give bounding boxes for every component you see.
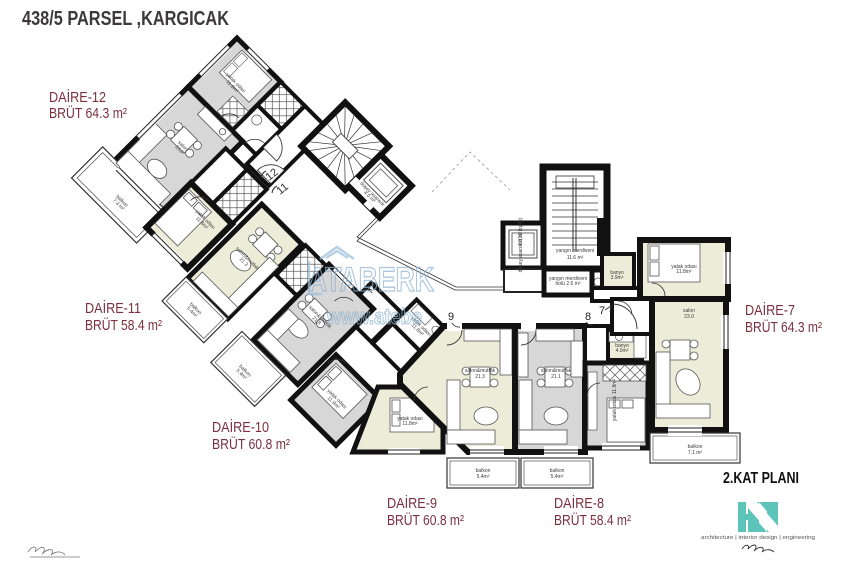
svg-text:11.6 m²: 11.6 m² [567, 255, 584, 261]
svg-text:BRÜT 64.3 m²: BRÜT 64.3 m² [745, 318, 822, 336]
svg-text:4.0 m²: 4.0 m² [518, 232, 524, 247]
svg-text:3.9m²: 3.9m² [611, 275, 624, 281]
svg-text:DAİRE-10: DAİRE-10 [212, 418, 269, 436]
svg-text:DAİRE-8: DAİRE-8 [554, 494, 604, 512]
svg-text:DAİRE-12: DAİRE-12 [49, 88, 106, 106]
svg-text:11.8m²: 11.8m² [402, 421, 418, 427]
svg-text:9: 9 [448, 311, 454, 323]
svg-text:BRÜT 60.8 m²: BRÜT 60.8 m² [212, 435, 290, 453]
svg-text:DAİRE-9: DAİRE-9 [387, 494, 437, 512]
svg-text:5.4m²: 5.4m² [477, 474, 490, 480]
svg-text:www.atebe: www.atebe [326, 304, 422, 329]
svg-text:BRÜT 58.4 m²: BRÜT 58.4 m² [85, 316, 162, 334]
svg-text:yangın merdiveni: yangın merdiveni [556, 248, 594, 254]
svg-text:23.0: 23.0 [684, 314, 694, 320]
svg-text:2.KAT PLANI: 2.KAT PLANI [723, 470, 799, 487]
svg-text:21.1: 21.1 [551, 374, 561, 380]
svg-text:8: 8 [585, 311, 591, 323]
svg-text:ATABERK: ATABERK [308, 261, 434, 299]
svg-text:architecture | interior desi: architecture | interior design | enginee… [701, 535, 815, 541]
svg-text:DAİRE-11: DAİRE-11 [85, 299, 141, 317]
svg-text:7: 7 [599, 305, 605, 317]
svg-text:11.8m²: 11.8m² [676, 269, 692, 275]
svg-text:holü 2.6 m²: holü 2.6 m² [555, 281, 580, 287]
svg-text:BRÜT 64.3 m²: BRÜT 64.3 m² [49, 104, 127, 122]
svg-text:DAİRE-7: DAİRE-7 [745, 301, 795, 319]
svg-text:11: 11 [274, 181, 290, 197]
svg-text:BRÜT 60.8 m²: BRÜT 60.8 m² [387, 511, 464, 529]
svg-text:4.0m²: 4.0m² [616, 348, 629, 354]
svg-text:BRÜT 58.4 m²: BRÜT 58.4 m² [554, 511, 631, 529]
svg-text:438/5 PARSEL ,KARGICAK: 438/5 PARSEL ,KARGICAK [22, 8, 229, 30]
svg-text:yatak odası 11.8m²: yatak odası 11.8m² [612, 379, 618, 421]
svg-text:21.3: 21.3 [475, 374, 485, 380]
svg-text:5.4m²: 5.4m² [551, 474, 564, 480]
svg-text:7.1 m²: 7.1 m² [688, 450, 703, 456]
